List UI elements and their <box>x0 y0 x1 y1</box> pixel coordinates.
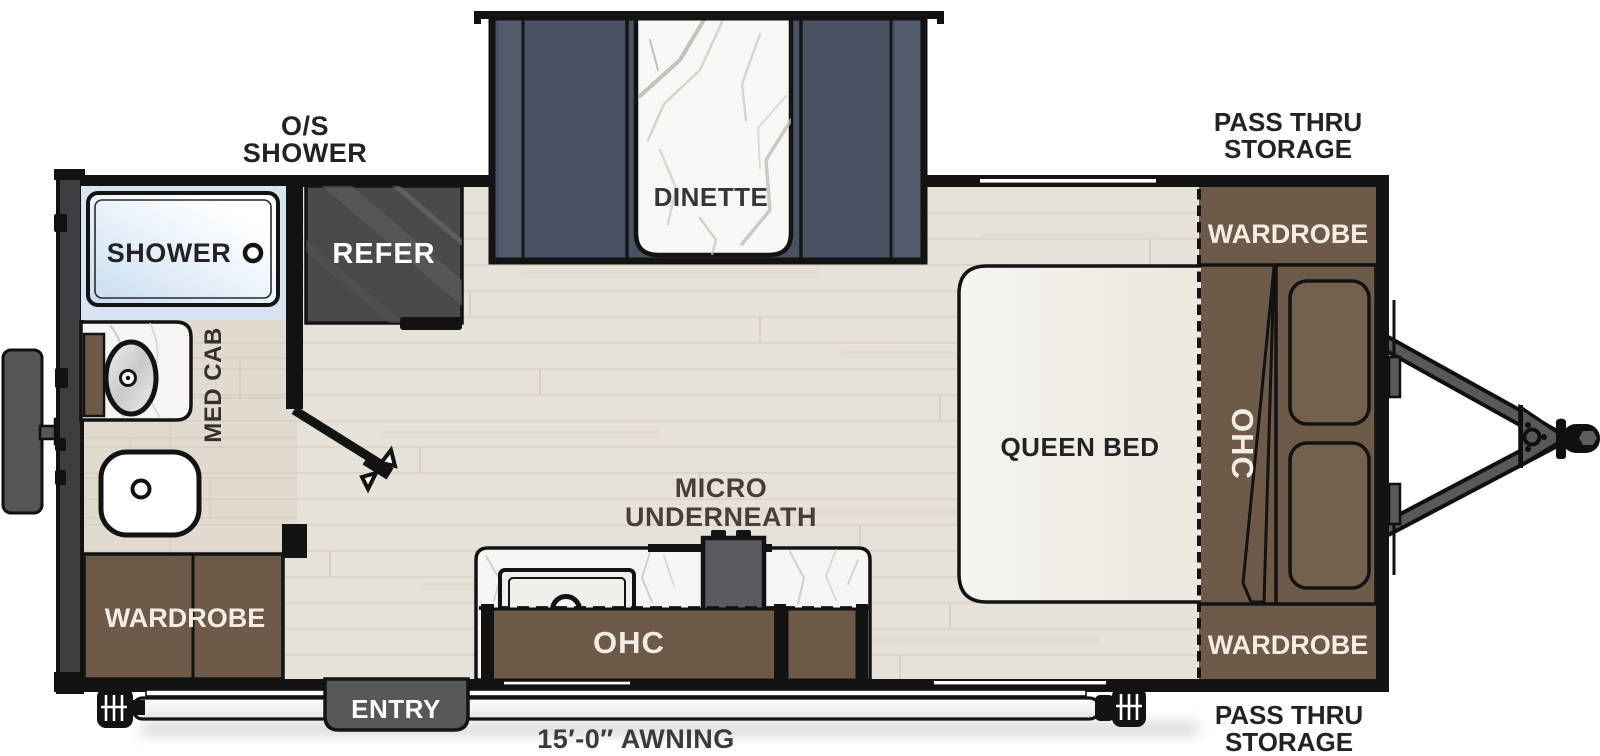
svg-text:OHC: OHC <box>1225 408 1260 480</box>
svg-text:MICRO: MICRO <box>675 473 768 503</box>
svg-text:OHC: OHC <box>593 625 665 660</box>
svg-text:QUEEN BED: QUEEN BED <box>1000 432 1159 462</box>
svg-text:PASS THRU: PASS THRU <box>1215 700 1363 730</box>
svg-text:SHOWER: SHOWER <box>107 238 232 268</box>
svg-text:O/S: O/S <box>281 111 329 141</box>
svg-text:MED CAB: MED CAB <box>200 327 227 443</box>
svg-text:WARDROBE: WARDROBE <box>1208 219 1369 249</box>
svg-text:PASS THRU: PASS THRU <box>1214 107 1362 137</box>
svg-text:15′-0″ AWNING: 15′-0″ AWNING <box>537 724 734 754</box>
svg-text:UNDERNEATH: UNDERNEATH <box>625 502 817 532</box>
svg-text:WARDROBE: WARDROBE <box>105 603 266 633</box>
svg-text:ENTRY: ENTRY <box>351 694 441 724</box>
svg-text:STORAGE: STORAGE <box>1224 134 1352 164</box>
svg-text:WARDROBE: WARDROBE <box>1208 630 1369 660</box>
svg-text:STORAGE: STORAGE <box>1225 727 1353 756</box>
svg-text:SHOWER: SHOWER <box>243 138 368 168</box>
svg-text:DINETTE: DINETTE <box>654 182 769 212</box>
svg-text:REFER: REFER <box>332 238 435 270</box>
